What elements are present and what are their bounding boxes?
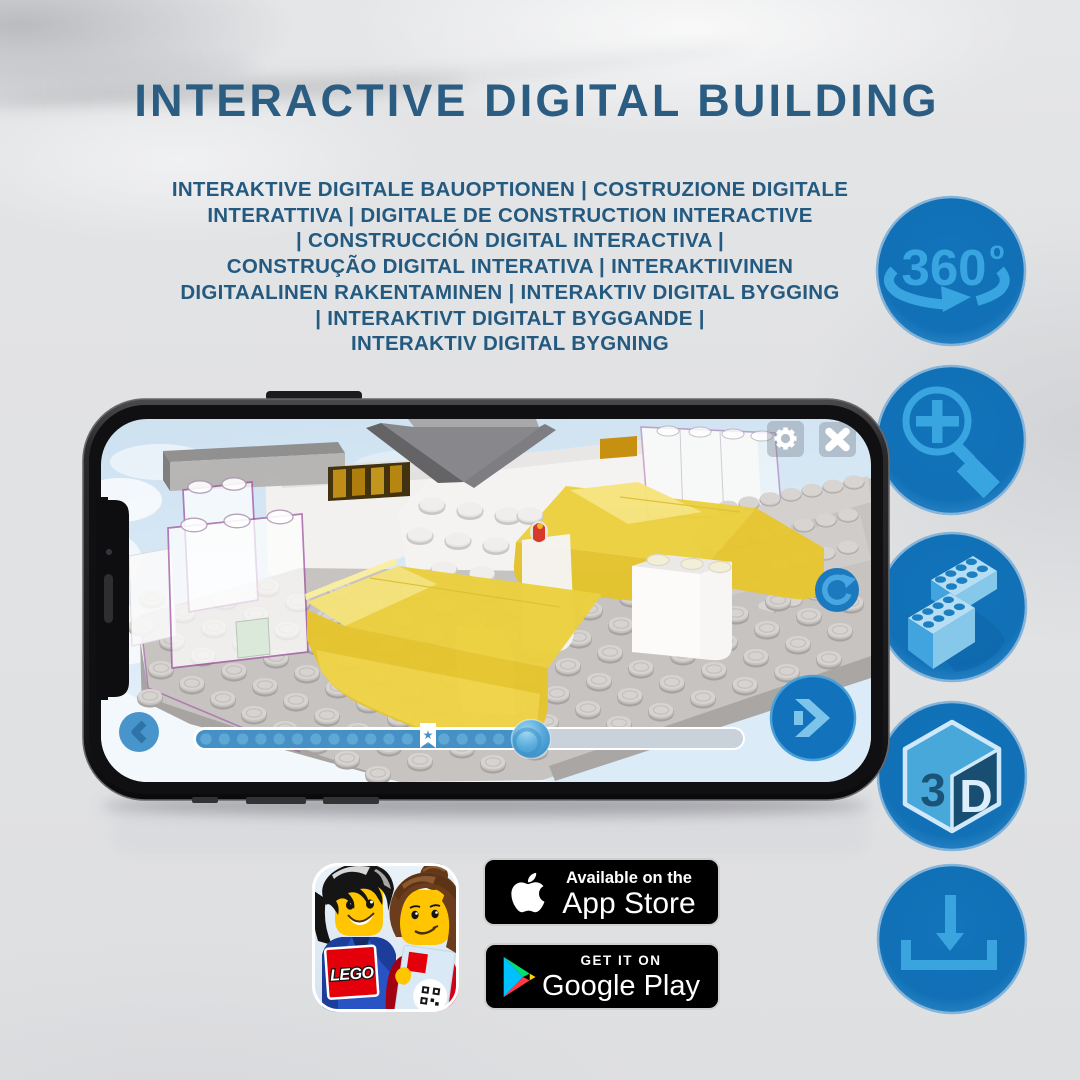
svg-text:App Store: App Store <box>562 887 695 920</box>
svg-text:Available on the: Available on the <box>566 869 692 887</box>
svg-text:★: ★ <box>423 728 434 742</box>
svg-text:Google Play: Google Play <box>542 970 700 1002</box>
svg-text:LEGO: LEGO <box>330 965 375 985</box>
svg-text:GET IT ON: GET IT ON <box>581 953 662 968</box>
